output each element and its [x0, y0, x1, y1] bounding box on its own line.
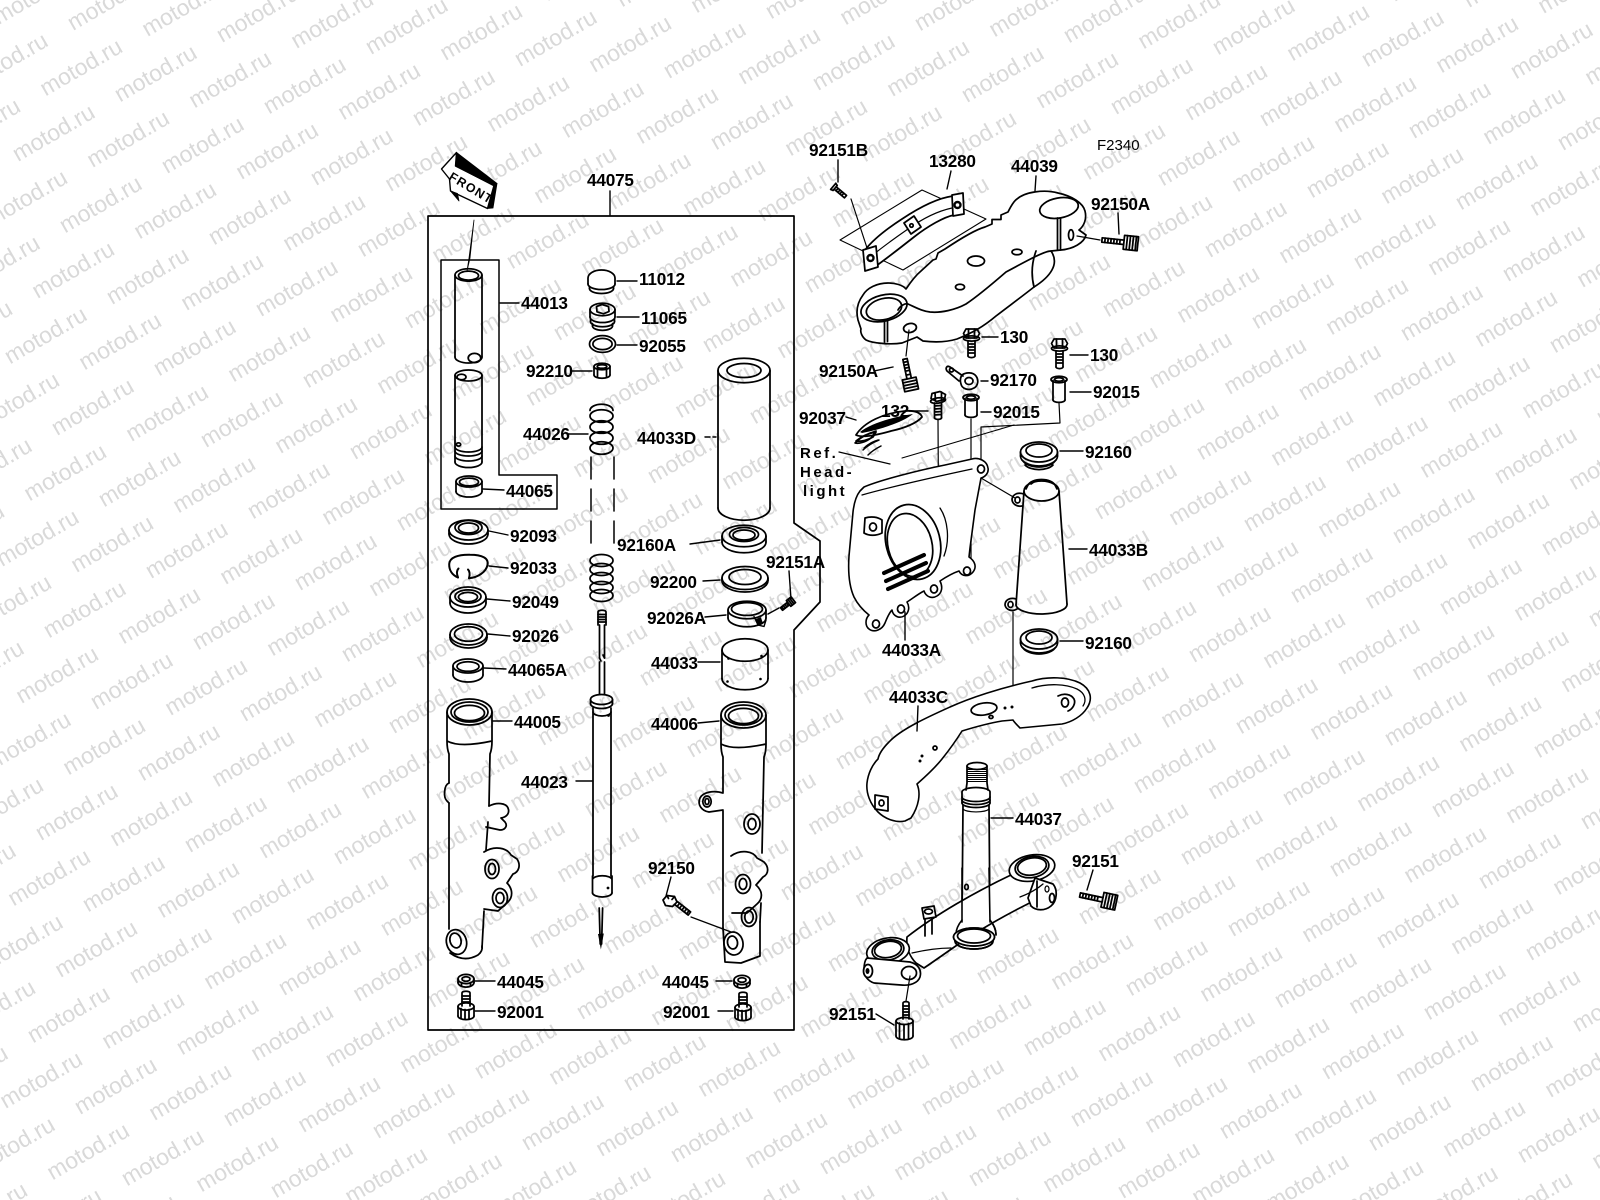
svg-text:92150A: 92150A: [819, 361, 878, 381]
svg-text:130: 130: [1090, 345, 1118, 365]
svg-text:92160: 92160: [1085, 442, 1132, 462]
svg-text:92026A: 92026A: [647, 608, 706, 628]
svg-text:92151: 92151: [829, 1004, 876, 1024]
svg-text:44006: 44006: [651, 714, 698, 734]
svg-text:130: 130: [1000, 327, 1028, 347]
svg-text:92150A: 92150A: [1091, 194, 1150, 214]
svg-text:92151A: 92151A: [766, 552, 825, 572]
svg-text:92160A: 92160A: [617, 535, 676, 555]
svg-text:92160: 92160: [1085, 633, 1132, 653]
svg-text:Ref.: Ref.: [800, 445, 838, 462]
svg-text:92170: 92170: [990, 370, 1037, 390]
svg-text:92200: 92200: [650, 572, 697, 592]
svg-text:92015: 92015: [993, 402, 1040, 422]
svg-text:92015: 92015: [1093, 382, 1140, 402]
svg-text:92150: 92150: [648, 858, 695, 878]
svg-text:92001: 92001: [497, 1002, 544, 1022]
svg-text:44026: 44026: [523, 424, 570, 444]
svg-text:44065: 44065: [506, 481, 553, 501]
svg-text:92033: 92033: [510, 558, 557, 578]
svg-text:92055: 92055: [639, 336, 686, 356]
svg-text:light: light: [803, 483, 847, 500]
svg-text:11012: 11012: [639, 269, 685, 289]
svg-text:44033D: 44033D: [637, 428, 696, 448]
svg-text:92049: 92049: [512, 592, 559, 612]
svg-text:11065: 11065: [641, 308, 687, 328]
svg-text:44013: 44013: [521, 293, 568, 313]
svg-text:44037: 44037: [1015, 809, 1062, 829]
svg-text:44033A: 44033A: [882, 640, 941, 660]
svg-text:44033: 44033: [651, 653, 698, 673]
svg-text:44045: 44045: [662, 972, 709, 992]
svg-text:44075: 44075: [587, 170, 634, 190]
svg-text:44039: 44039: [1011, 156, 1058, 176]
svg-text:44033B: 44033B: [1089, 540, 1148, 560]
svg-text:44065A: 44065A: [508, 660, 567, 680]
svg-text:44045: 44045: [497, 972, 544, 992]
svg-text:44005: 44005: [514, 712, 561, 732]
svg-text:92151: 92151: [1072, 851, 1119, 871]
svg-text:92210: 92210: [526, 361, 573, 381]
svg-text:44023: 44023: [521, 772, 568, 792]
svg-text:92151B: 92151B: [809, 140, 868, 160]
svg-text:44033C: 44033C: [889, 687, 948, 707]
svg-text:92093: 92093: [510, 526, 557, 546]
svg-text:Head-: Head-: [800, 464, 854, 481]
svg-text:92001: 92001: [663, 1002, 710, 1022]
svg-text:92026: 92026: [512, 626, 559, 646]
svg-text:13280: 13280: [929, 151, 976, 171]
svg-text:92037: 92037: [799, 408, 846, 428]
svg-text:F2340: F2340: [1097, 137, 1140, 154]
